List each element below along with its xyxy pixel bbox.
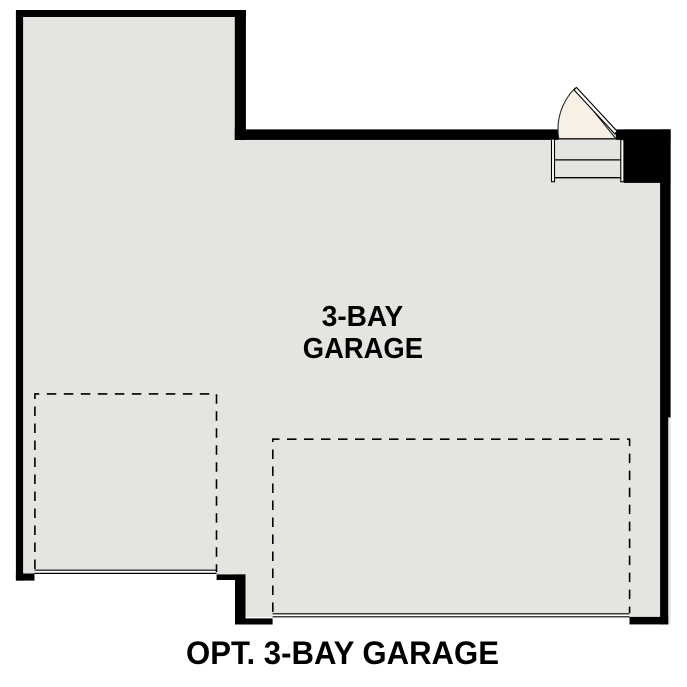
svg-text:GARAGE: GARAGE [303, 333, 423, 365]
svg-text:3-BAY: 3-BAY [322, 301, 404, 333]
svg-text:OPT. 3-BAY GARAGE: OPT. 3-BAY GARAGE [186, 635, 499, 671]
